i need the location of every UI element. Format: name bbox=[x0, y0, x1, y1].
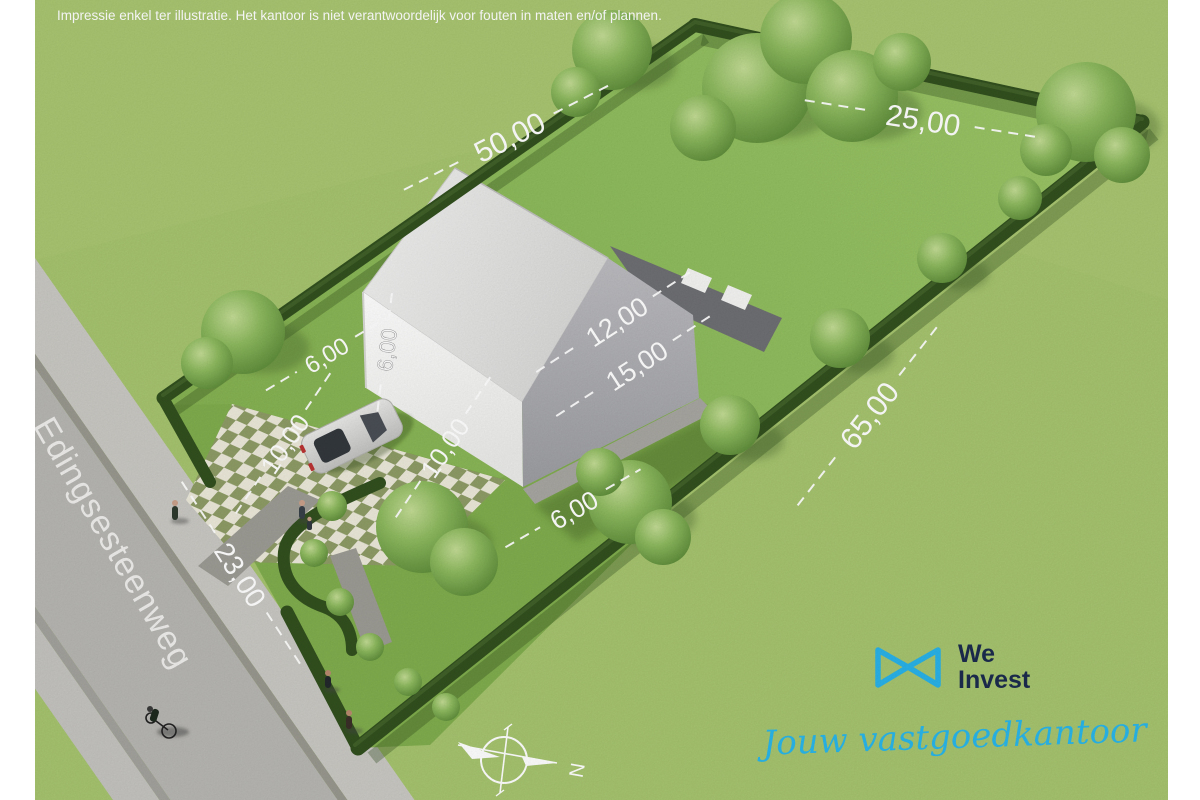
right-margin bbox=[1168, 0, 1200, 800]
site-plan-illustration: Edingsesteenweg 50,00 25,00 65,00 23,00 … bbox=[0, 0, 1200, 800]
left-margin bbox=[0, 0, 35, 800]
site-plan-canvas: Edingsesteenweg 50,00 25,00 65,00 23,00 … bbox=[0, 0, 1200, 800]
texture-overlay bbox=[35, 0, 1168, 800]
